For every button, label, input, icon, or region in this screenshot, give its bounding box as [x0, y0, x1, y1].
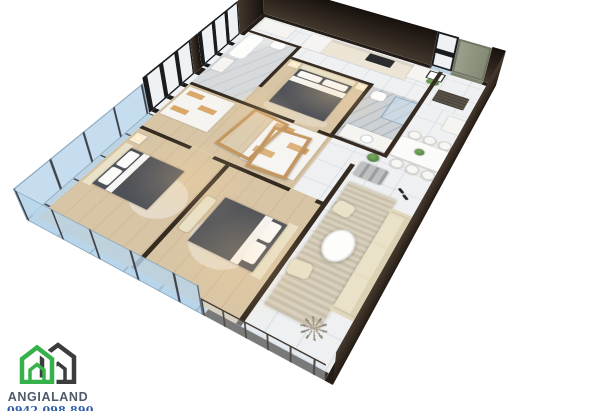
watermark-logo: ANGIALAND 0942.098.890 — [7, 342, 89, 411]
brand-name: ANGIALAND — [7, 390, 89, 404]
table-lamp-icon — [134, 135, 142, 140]
phone-number: 0942.098.890 — [7, 404, 89, 411]
houses-logo-icon — [16, 342, 80, 384]
floorplan-render-canvas: ANGIALAND 0942.098.890 — [0, 0, 600, 411]
apartment-floorplan — [27, 13, 496, 385]
